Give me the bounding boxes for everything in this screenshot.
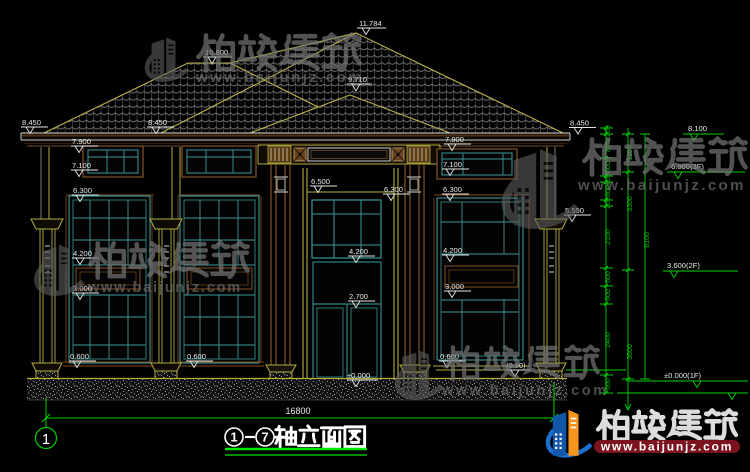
svg-text:6.500: 6.500 (311, 177, 330, 186)
svg-text:8100: 8100 (644, 232, 651, 248)
svg-text:www.baijunjz.com: www.baijunjz.com (600, 440, 733, 454)
svg-text:0.600: 0.600 (187, 352, 206, 361)
svg-text:7: 7 (261, 430, 268, 445)
svg-text:3.600(2F): 3.600(2F) (667, 261, 700, 270)
svg-text:3600: 3600 (627, 344, 634, 360)
svg-text:www.baijunjz.com: www.baijunjz.com (87, 280, 242, 296)
svg-text:2400: 2400 (605, 332, 612, 348)
svg-text:11.784: 11.784 (359, 19, 382, 28)
svg-text:4.200: 4.200 (73, 249, 92, 258)
svg-text:±0.000: ±0.000 (347, 371, 370, 380)
svg-text:7.100: 7.100 (72, 161, 91, 170)
svg-text:6.300: 6.300 (384, 185, 403, 194)
svg-text:7.900: 7.900 (72, 137, 91, 146)
svg-text:www.baijunjz.com: www.baijunjz.com (195, 69, 364, 86)
svg-text:600: 600 (605, 289, 612, 301)
svg-text:4.200: 4.200 (349, 247, 368, 256)
svg-text:3300: 3300 (627, 196, 634, 212)
svg-text:200: 200 (605, 197, 612, 209)
svg-text:4.200: 4.200 (443, 246, 462, 255)
svg-text:2100: 2100 (605, 229, 612, 245)
svg-text:600: 600 (605, 271, 612, 283)
svg-text:6.300: 6.300 (443, 185, 462, 194)
svg-text:±0.000(1F): ±0.000(1F) (664, 371, 702, 380)
svg-text:8.450: 8.450 (570, 119, 589, 128)
svg-text:www.baijunjz.com: www.baijunjz.com (577, 177, 746, 194)
svg-text:7.900: 7.900 (445, 135, 464, 144)
svg-text:www.baijunjz.com: www.baijunjz.com (441, 383, 609, 399)
svg-text:2.700: 2.700 (349, 292, 368, 301)
svg-text:0.600: 0.600 (70, 352, 89, 361)
svg-text:1: 1 (230, 430, 237, 445)
svg-text:6.300: 6.300 (73, 186, 92, 195)
svg-text:7.100: 7.100 (443, 160, 462, 169)
svg-text:8.450: 8.450 (148, 118, 167, 127)
svg-text:1: 1 (42, 431, 50, 448)
svg-text:200: 200 (605, 125, 612, 137)
svg-text:3.000: 3.000 (445, 282, 464, 291)
svg-text:8.450: 8.450 (22, 118, 41, 127)
svg-text:8.100: 8.100 (688, 124, 707, 133)
svg-text:16800: 16800 (285, 406, 310, 416)
